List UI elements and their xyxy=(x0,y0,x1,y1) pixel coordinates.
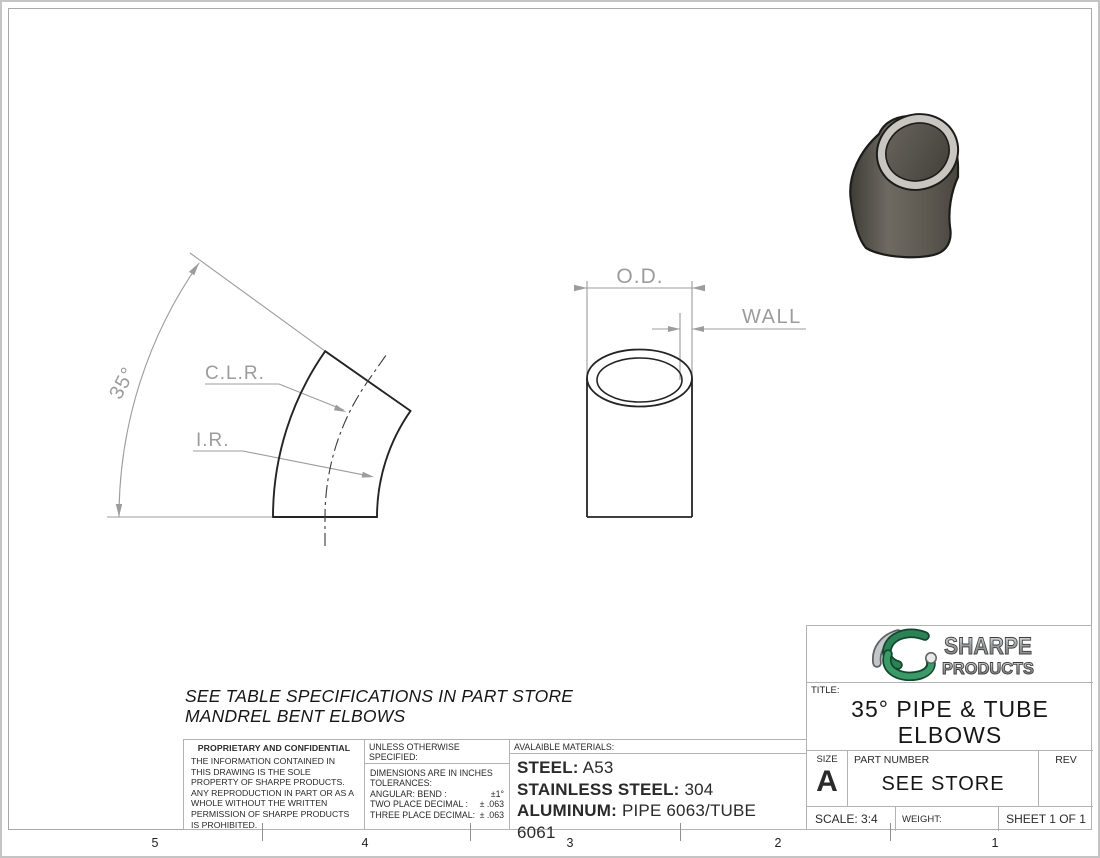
sharpe-products-logo: SHARPE PRODUCTS xyxy=(862,628,1038,681)
end-view-arrowheads xyxy=(574,285,705,332)
logo-text-products: PRODUCTS xyxy=(942,660,1034,678)
ir-arrow xyxy=(362,472,374,478)
material-row: STAINLESS STEEL: 304 xyxy=(517,779,799,801)
tolerance-row: TWO PLACE DECIMAL : ± .063 xyxy=(370,799,504,809)
outer-radius-arc xyxy=(273,351,325,517)
tube-id-ellipse xyxy=(597,358,682,402)
od-arrow-left xyxy=(574,285,587,291)
brand-logo: SHARPE PRODUCTS xyxy=(862,628,1038,686)
zone-number: 5 xyxy=(135,836,175,850)
proprietary-body: THE INFORMATION CONTAINED IN THIS DRAWIN… xyxy=(191,756,357,830)
logo-tube-end xyxy=(926,653,936,663)
material-value: 304 xyxy=(684,780,713,799)
title-label: TITLE: xyxy=(811,685,840,696)
tolerance-label: THREE PLACE DECIMAL: xyxy=(370,810,475,820)
drawing-sheet: { "colors": { "outline_ink": "#1f1f1f", … xyxy=(0,0,1100,858)
rev-label: REV xyxy=(1039,754,1093,766)
materials-heading: AVALAIBLE MATERIALS: xyxy=(510,740,806,754)
rev-cell: REV xyxy=(1038,751,1093,806)
tolerances-dims-note: DIMENSIONS ARE IN INCHES xyxy=(370,768,504,778)
proprietary-block: PROPRIETARY AND CONFIDENTIAL THE INFORMA… xyxy=(183,739,365,830)
scale-value: SCALE: 3:4 xyxy=(807,807,895,826)
drawing-title: 35° PIPE & TUBE ELBOWS xyxy=(807,696,1093,748)
tolerance-value: ±1° xyxy=(491,789,504,799)
material-value: A53 xyxy=(583,758,614,777)
drawing-title-line1: 35° PIPE & TUBE xyxy=(807,696,1093,722)
ir-label: I.R. xyxy=(196,430,230,451)
part-number-label: PART NUMBER xyxy=(854,754,929,766)
part-number-cell: PART NUMBER SEE STORE xyxy=(847,751,1038,806)
zone-tick xyxy=(262,823,263,841)
material-label: STEEL: xyxy=(517,758,579,777)
tolerances-body: DIMENSIONS ARE IN INCHES TOLERANCES: ANG… xyxy=(365,764,509,820)
material-label: STAINLESS STEEL: xyxy=(517,780,680,799)
size-cell: SIZE A xyxy=(807,751,847,806)
angled-extension-line xyxy=(190,253,325,351)
angle-dimension-label: 35° xyxy=(105,363,140,403)
inner-radius-arc xyxy=(377,411,411,517)
clr-arrow xyxy=(334,405,346,412)
end-view-dimension-lines xyxy=(574,281,806,400)
materials-body: STEEL: A53 STAINLESS STEEL: 304 ALUMINUM… xyxy=(510,754,806,843)
spec-note-line2: MANDREL BENT ELBOWS xyxy=(185,707,573,727)
od-label: O.D. xyxy=(616,265,663,288)
elbow-outline xyxy=(273,351,411,517)
zone-tick xyxy=(680,823,681,841)
zone-tick xyxy=(470,823,471,841)
brand-logo-row: SHARPE PRODUCTS xyxy=(807,626,1093,683)
title-block: SHARPE PRODUCTS TITLE: 35° PIPE & TUBE E… xyxy=(806,625,1092,830)
size-value: A xyxy=(807,767,847,797)
size-part-rev-row: SIZE A PART NUMBER SEE STORE REV xyxy=(807,751,1093,807)
tolerance-value: ± .063 xyxy=(480,810,504,820)
arc-arrow-bottom xyxy=(116,504,122,517)
material-label: ALUMINUM: xyxy=(517,801,617,820)
wall-arrow-left xyxy=(668,326,680,332)
tolerances-block: UNLESS OTHERWISE SPECIFIED: DIMENSIONS A… xyxy=(364,739,510,830)
zone-number: 2 xyxy=(758,836,798,850)
weight-cell: WEIGHT: xyxy=(895,807,998,831)
scale-cell: SCALE: 3:4 xyxy=(807,807,895,831)
tolerances-tol-note: TOLERANCES: xyxy=(370,778,504,788)
wall-arrow-right xyxy=(692,326,704,332)
proprietary-heading: PROPRIETARY AND CONFIDENTIAL xyxy=(191,743,357,753)
end-view-tube: O.D. WALL xyxy=(574,265,806,517)
zone-number: 1 xyxy=(975,836,1015,850)
logo-s-mark xyxy=(877,633,936,676)
material-row: STEEL: A53 xyxy=(517,757,799,779)
part-number-value: SEE STORE xyxy=(848,773,1038,796)
drawing-title-line2: ELBOWS xyxy=(807,722,1093,748)
tolerance-label: TWO PLACE DECIMAL : xyxy=(370,799,468,809)
side-view-elbow: 35° C.L.R. I.R. xyxy=(105,253,410,546)
side-view-arrowheads xyxy=(116,263,374,517)
weight-label: WEIGHT: xyxy=(896,807,998,825)
materials-block: AVALAIBLE MATERIALS: STEEL: A53 STAINLES… xyxy=(509,739,807,830)
tolerance-value: ± .063 xyxy=(480,799,504,809)
clr-label: C.L.R. xyxy=(205,363,265,384)
zone-number: 3 xyxy=(550,836,590,850)
title-row: TITLE: 35° PIPE & TUBE ELBOWS xyxy=(807,683,1093,751)
logo-text-sharpe: SHARPE xyxy=(944,633,1032,660)
wall-label: WALL xyxy=(742,306,802,328)
size-label: SIZE xyxy=(807,754,847,765)
spec-note-line1: SEE TABLE SPECIFICATIONS IN PART STORE xyxy=(185,687,573,707)
sheet-cell: SHEET 1 OF 1 xyxy=(998,807,1093,831)
elbow-3d-render xyxy=(850,103,969,258)
clr-leader-line xyxy=(205,384,344,410)
tolerance-row: THREE PLACE DECIMAL: ± .063 xyxy=(370,810,504,820)
zone-number: 4 xyxy=(345,836,385,850)
zone-tick xyxy=(890,823,891,841)
scale-weight-sheet-row: SCALE: 3:4 WEIGHT: SHEET 1 OF 1 xyxy=(807,807,1093,831)
tube-outline xyxy=(587,350,692,518)
tolerance-row: ANGULAR: BEND : ±1° xyxy=(370,789,504,799)
side-view-dimension-lines xyxy=(107,253,363,517)
spec-note: SEE TABLE SPECIFICATIONS IN PART STORE M… xyxy=(185,687,573,726)
tolerance-label: ANGULAR: BEND : xyxy=(370,789,447,799)
tolerances-heading: UNLESS OTHERWISE SPECIFIED: xyxy=(365,740,509,764)
arc-arrow-top xyxy=(189,263,199,276)
sheet-value: SHEET 1 OF 1 xyxy=(999,807,1093,826)
od-arrow-right xyxy=(692,285,705,291)
logo-wordmark: SHARPE PRODUCTS xyxy=(942,633,1034,678)
